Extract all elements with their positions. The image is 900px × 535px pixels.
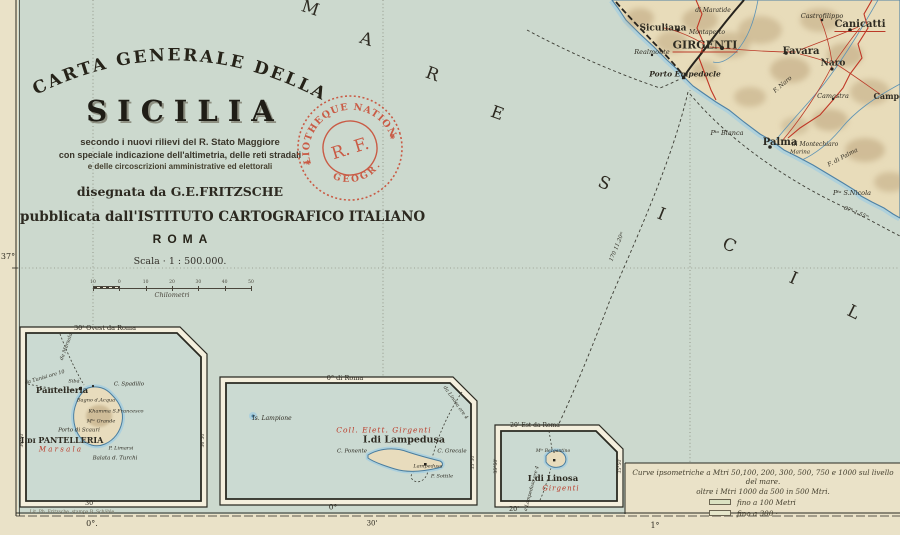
label-isola-lampedusa: I.di Lampedusa — [363, 435, 445, 445]
legend-line1: Curve ipsometriche a Mtri 50,100, 200, 3… — [628, 468, 898, 486]
label-naro: Naro — [821, 60, 846, 69]
map-label: 35°50' — [619, 459, 624, 474]
scale-tick-number: 0 — [118, 280, 121, 285]
label-realmonte: Realmonte — [634, 49, 669, 56]
label-camastra: Camastra — [817, 93, 849, 100]
margin-longitude: 30' — [367, 521, 378, 528]
sea-letter: I — [655, 206, 668, 224]
scale-bar: 1001020304050 Chilometri — [93, 283, 251, 297]
label-canicatti: Canicatti — [834, 20, 885, 32]
svg-text:CARTA GENERALE DELLA: CARTA GENERALE DELLA — [30, 45, 331, 100]
title-arc-text: CARTA GENERALE DELLA — [30, 45, 331, 100]
map-label: 20' — [509, 506, 519, 513]
label-favara: Favara — [782, 47, 819, 57]
map-label: da Linosa ore 4 — [442, 386, 469, 421]
map-label: F. di Palma — [827, 148, 859, 169]
label-siculiana: Siculiana — [640, 25, 687, 34]
label-punta-s-nicola: Pᵗᵃ S.Nicola — [833, 190, 871, 197]
legend-items: fino a 100 Metrifino a 300 · — [628, 497, 898, 518]
sea-letter: A — [358, 30, 375, 50]
sea-letter: M — [299, 0, 321, 20]
label-porto-empedocle: Porto Empedocle — [649, 70, 721, 78]
scale-tick-number: 10 — [143, 280, 149, 285]
title-sub3: e delle circoscrizioni amministrative ed… — [20, 162, 340, 171]
stamp-center-text: R. F. — [329, 134, 371, 164]
label-castrofilippo: Castrofilippo — [801, 13, 844, 20]
scale-tick-number: 40 — [222, 280, 228, 285]
label-lampione: Is. Lampione — [252, 416, 291, 422]
inset-pantelleria-meridian: 30' Ovest da Roma — [74, 325, 136, 332]
route-label: 170 11.20ᵐ — [610, 231, 627, 262]
title-publisher: pubblicata dall'ISTITUTO CARTOGRAFICO IT… — [20, 209, 340, 225]
scale-bar-hatch — [93, 286, 120, 289]
map-label: 35°30' — [472, 455, 477, 470]
map-label: P. Limarsi — [109, 447, 134, 452]
scale-tick-number: 30 — [195, 280, 201, 285]
legend-swatch — [709, 510, 731, 516]
map-label: Montaperto — [689, 30, 725, 36]
map-label: F. Naro — [773, 76, 794, 95]
label-punta-bianca: Pᵗᵃ Bianca — [711, 130, 744, 137]
sea-letter: R — [423, 65, 441, 85]
map-label: C. Grecale — [437, 449, 466, 455]
map-label: 36°50' — [202, 433, 207, 448]
map-label: di Montechiaro — [792, 142, 838, 148]
legend-item: fino a 100 Metri — [628, 497, 898, 507]
map-label: Balata d. Turchi — [93, 456, 138, 462]
sea-letter: E — [488, 104, 505, 124]
label-coll-elett-linosa: Girgenti — [542, 486, 579, 493]
sea-letter: S — [595, 174, 612, 194]
label-coll-elett-girgenti: Coll. Elett. Girgenti — [336, 426, 431, 434]
label-isola-pantelleria: I.ᴅɪ PANTELLERIA — [21, 436, 104, 444]
map-label: Sibà — [68, 380, 79, 385]
inset-linosa-meridian: 20' Est da Roma — [510, 423, 560, 429]
label-girgenti: GIRGENTI — [673, 40, 738, 53]
map-label: C. Spadillo — [114, 382, 144, 388]
scale-tick-number: 50 — [248, 280, 254, 285]
map-label: Porto di Scauri — [58, 428, 100, 434]
scale-tick-number: 10 — [90, 280, 96, 285]
legend-item-label: fino a 100 Metri — [737, 498, 817, 507]
map-label: Marina — [790, 150, 810, 156]
margin-longitude: 1° — [650, 522, 659, 530]
map-label: Khamma S.Francesco — [88, 410, 143, 415]
map-label: Mᵗᵉ Grande — [87, 420, 116, 425]
map-label: 0° — [329, 503, 338, 511]
scale-tick — [251, 286, 252, 291]
map-label: da Marsala — [60, 333, 74, 361]
label-pantelleria-town: Pantelleria — [36, 387, 88, 396]
map-sheet: MARESICILSiculianaGIRGENTIFavaraCanicatt… — [0, 0, 900, 535]
hypsometric-legend: Curve ipsometriche a Mtri 50,100, 200, 3… — [628, 464, 898, 512]
title-author: disegnata da G.E.FRITZSCHE — [20, 184, 340, 199]
legend-line2: oltre i Mtri 1000 da 500 in 500 Mtri. — [628, 487, 898, 496]
legend-item: fino a 300 · — [628, 508, 898, 518]
label-coll-elett-marsala: M a r s a l a — [39, 447, 81, 454]
legend-swatch — [709, 499, 731, 505]
margin-latitude: 37° — [1, 253, 15, 261]
imprint: Lit. Ph. Fritzsche, stampa B. Schäble — [30, 511, 114, 516]
map-label: P. Sottile — [431, 475, 453, 480]
label-campobello: Campo — [874, 92, 900, 100]
map-label: Lampedusa — [413, 465, 442, 470]
sea-letter: C — [720, 236, 739, 257]
route-label: 87ᵏ 1.55ᵐ — [843, 207, 870, 222]
inset-lampedusa-meridian: 0° di Roma — [327, 375, 364, 382]
scale-bar-unit: Chilometri — [93, 291, 251, 299]
map-label: Bagno d.Acqua — [77, 399, 115, 404]
map-label: 30' — [85, 500, 95, 507]
map-label: 35°50' — [495, 459, 500, 474]
map-label: di Maratide — [695, 8, 731, 14]
map-label: Mᵗᵉ Bergantino — [536, 450, 570, 455]
title-scale: Scala · 1 : 500.000. — [20, 256, 340, 267]
map-label: da Tunisi ore 10 — [24, 370, 65, 386]
scale-tick-number: 20 — [169, 280, 175, 285]
title-city: ROMA — [20, 232, 340, 246]
map-label: C. Ponente — [337, 449, 367, 455]
title-arc-svg: CARTA GENERALE DELLA — [20, 38, 340, 100]
sea-letter: I — [786, 270, 799, 288]
margin-longitude: 0°. — [86, 520, 98, 528]
sea-letter: L — [844, 303, 862, 323]
legend-item-label: fino a 300 · — [737, 509, 817, 518]
